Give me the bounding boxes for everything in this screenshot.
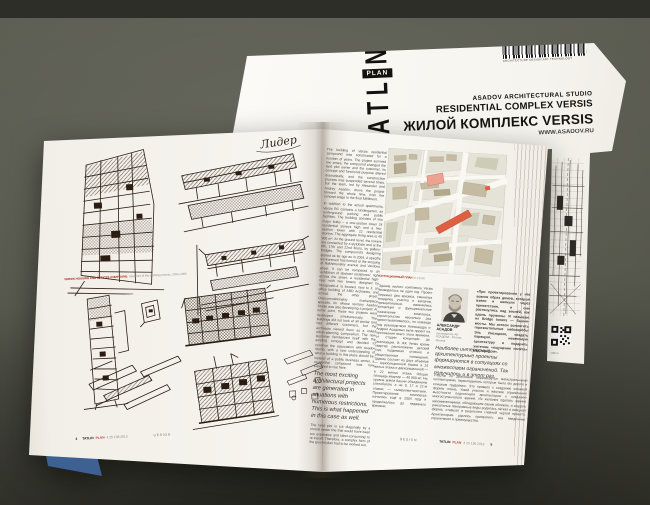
russian-continuation-column: Участок по диагонали пересекается магист… bbox=[431, 373, 528, 426]
left-page-content: Лидер bbox=[44, 129, 334, 457]
author-role: руководитель АБ АСАДОВА · Россия, Москва bbox=[436, 332, 470, 344]
right-page-content: The building of Versis residential compo… bbox=[302, 130, 548, 481]
russian-intro-column: Здание жилого комплекса Versis возводило… bbox=[372, 284, 433, 411]
english-paragraph: The building of Versis residential compo… bbox=[324, 147, 387, 202]
page-footer-right: DESIGN TATLIN PLAN 4 25 138 2013 5 bbox=[400, 437, 493, 446]
issue-info: 4 25 138 2013 bbox=[106, 435, 127, 440]
section-label: DESIGN bbox=[400, 437, 418, 442]
lead-quote: «При проектировании у нас возник образ д… bbox=[473, 289, 531, 356]
sketch-beam-doodles bbox=[81, 346, 188, 413]
english-paragraph: In addition to the actual apartments, Ve… bbox=[314, 202, 384, 372]
page-number: 4 bbox=[75, 437, 77, 441]
sketch-dense-facade bbox=[179, 284, 274, 350]
site-plan-map bbox=[380, 148, 509, 277]
map-caption: СИТУАЦИОННЫЙ ПЛАН М 1:2000 bbox=[379, 273, 425, 280]
page-number: 5 bbox=[490, 443, 492, 447]
map-caption-label: СИТУАЦИОННЫЙ ПЛАН bbox=[379, 273, 412, 279]
english-paragraph: The land plot is cut diagonally by a cru… bbox=[309, 423, 370, 448]
sketch-facade-grid bbox=[186, 350, 281, 432]
handwritten-note: Лидер bbox=[258, 133, 297, 152]
magazine-name: TATLIN bbox=[82, 436, 93, 441]
photo-of-magazines: N PLAN L T A T ARCHITECTURE DESIGN ART T… bbox=[0, 18, 650, 505]
sketch-bridge-bars: Лидер bbox=[172, 132, 316, 234]
edition-name: PLAN bbox=[95, 436, 104, 440]
section-label: DESIGN bbox=[153, 433, 171, 438]
author-portrait bbox=[440, 287, 468, 322]
sketch-small-glyph bbox=[135, 295, 162, 328]
edition-name: PLAN bbox=[452, 440, 461, 445]
page-footer-left: 4 TATLIN PLAN 4 25 138 2013 DESIGN bbox=[75, 433, 171, 441]
pull-quote-en: The most exciting architectural projects… bbox=[311, 371, 374, 423]
issue-info: 4 25 138 2013 bbox=[463, 441, 484, 446]
open-spread: Лидер bbox=[0, 18, 650, 505]
map-caption-scale: М 1:2000 bbox=[412, 275, 425, 280]
magazine-name: TATLIN bbox=[439, 440, 450, 445]
author-block: АЛЕКСАНДР АСАДОВ руководитель АБ АСАДОВА… bbox=[436, 287, 472, 344]
